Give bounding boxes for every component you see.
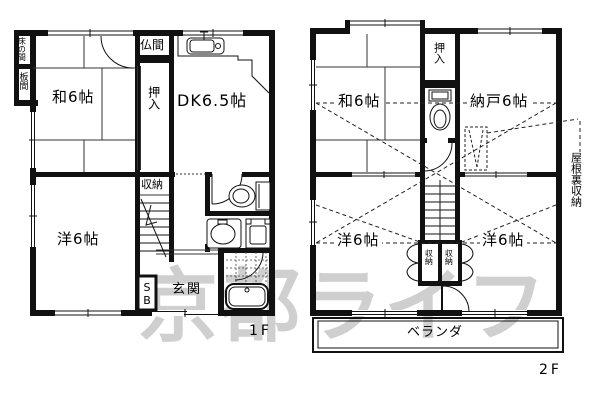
room-label-washitsu-2f: 和6帖 bbox=[336, 94, 383, 110]
floorplan-drawing bbox=[0, 0, 600, 400]
floorplan-canvas: 京都ライフ bbox=[0, 0, 600, 400]
room-label-veranda: ベランダ bbox=[407, 326, 463, 340]
room-label-tokonoma: 床の間 bbox=[17, 37, 25, 61]
floor1-tatami-lines bbox=[33, 36, 218, 254]
room-label-nando: 納戸6帖 bbox=[468, 94, 531, 110]
room-label-closet-left: 収納 bbox=[424, 249, 432, 265]
room-label-oshiire-1f: 押入 bbox=[147, 86, 160, 110]
room-label-attic: 屋根裏収納 bbox=[570, 152, 582, 207]
room-label-oshiire-2f: 押入 bbox=[433, 42, 445, 64]
room-label-shuunou-1f: 収納 bbox=[141, 179, 163, 191]
room-label-genkan: 玄関 bbox=[172, 283, 202, 297]
toilet-fixture-1f bbox=[229, 182, 270, 210]
floor1-label: 1F bbox=[249, 324, 272, 339]
room-label-closet-right: 収納 bbox=[444, 249, 452, 265]
room-label-youshitsu-2f-right: 洋6帖 bbox=[480, 233, 527, 249]
stairs-1f bbox=[140, 199, 169, 257]
floor2-windows bbox=[309, 19, 542, 317]
room-label-butsuma: 仏間 bbox=[140, 39, 164, 52]
room-label-itanoma: 板間 bbox=[17, 72, 26, 90]
room-label-washitsu-1f: 和6帖 bbox=[52, 90, 95, 106]
room-label-youshitsu-1f: 洋6帖 bbox=[57, 232, 100, 248]
room-label-shoebox: SB bbox=[141, 281, 153, 307]
washbasin-fixture bbox=[207, 219, 241, 248]
floor2-label: 2F bbox=[539, 363, 562, 378]
stairs-2f bbox=[425, 180, 455, 240]
attic-ladder-hatch bbox=[465, 127, 487, 170]
toilet-fixture-2f bbox=[429, 90, 451, 130]
bathtub-fixture bbox=[226, 284, 268, 312]
washing-machine-fixture bbox=[246, 219, 270, 248]
room-label-youshitsu-2f-left: 洋6帖 bbox=[335, 233, 382, 249]
kitchen-counter-icon bbox=[178, 31, 269, 93]
room-label-dk: DK6.5帖 bbox=[177, 93, 247, 110]
